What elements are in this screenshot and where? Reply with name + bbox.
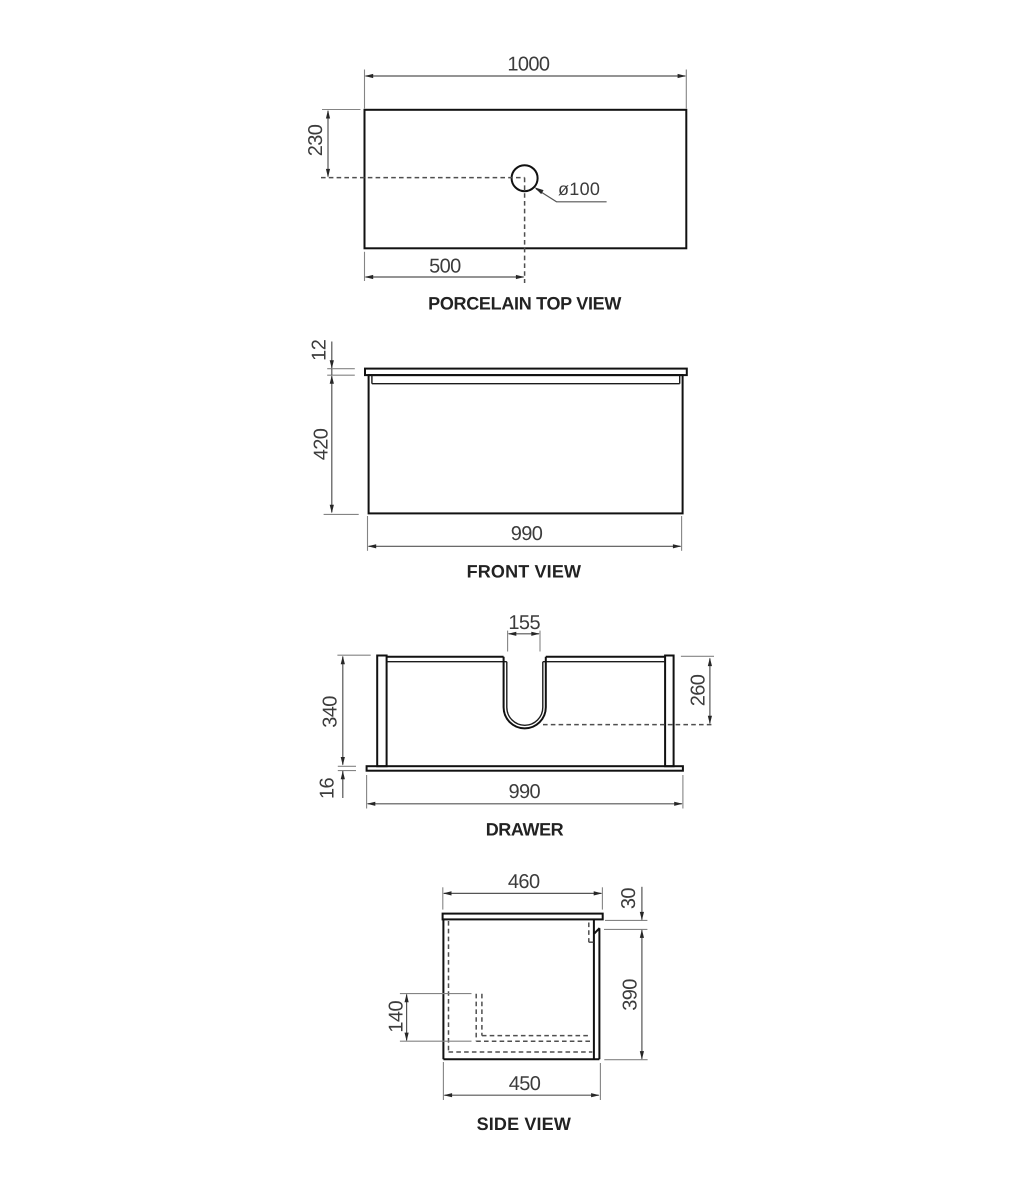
svg-text:340: 340 [320, 696, 342, 728]
svg-text:260: 260 [688, 674, 710, 706]
svg-text:SIDE VIEW: SIDE VIEW [477, 1114, 571, 1134]
svg-text:230: 230 [305, 124, 327, 156]
svg-text:1000: 1000 [507, 54, 550, 76]
svg-text:ø100: ø100 [558, 179, 600, 199]
svg-text:390: 390 [620, 979, 642, 1011]
svg-text:140: 140 [385, 1001, 407, 1033]
svg-text:PORCELAIN TOP VIEW: PORCELAIN TOP VIEW [428, 294, 621, 314]
svg-text:155: 155 [508, 612, 540, 634]
svg-text:FRONT VIEW: FRONT VIEW [467, 562, 582, 582]
svg-text:460: 460 [508, 871, 540, 893]
svg-text:12: 12 [309, 339, 331, 361]
svg-text:30: 30 [618, 888, 640, 910]
svg-text:500: 500 [429, 256, 461, 278]
svg-text:450: 450 [509, 1073, 541, 1095]
svg-text:990: 990 [509, 781, 541, 803]
svg-text:16: 16 [316, 778, 338, 800]
svg-text:DRAWER: DRAWER [486, 820, 564, 840]
svg-text:420: 420 [310, 428, 332, 460]
svg-text:990: 990 [511, 523, 543, 545]
